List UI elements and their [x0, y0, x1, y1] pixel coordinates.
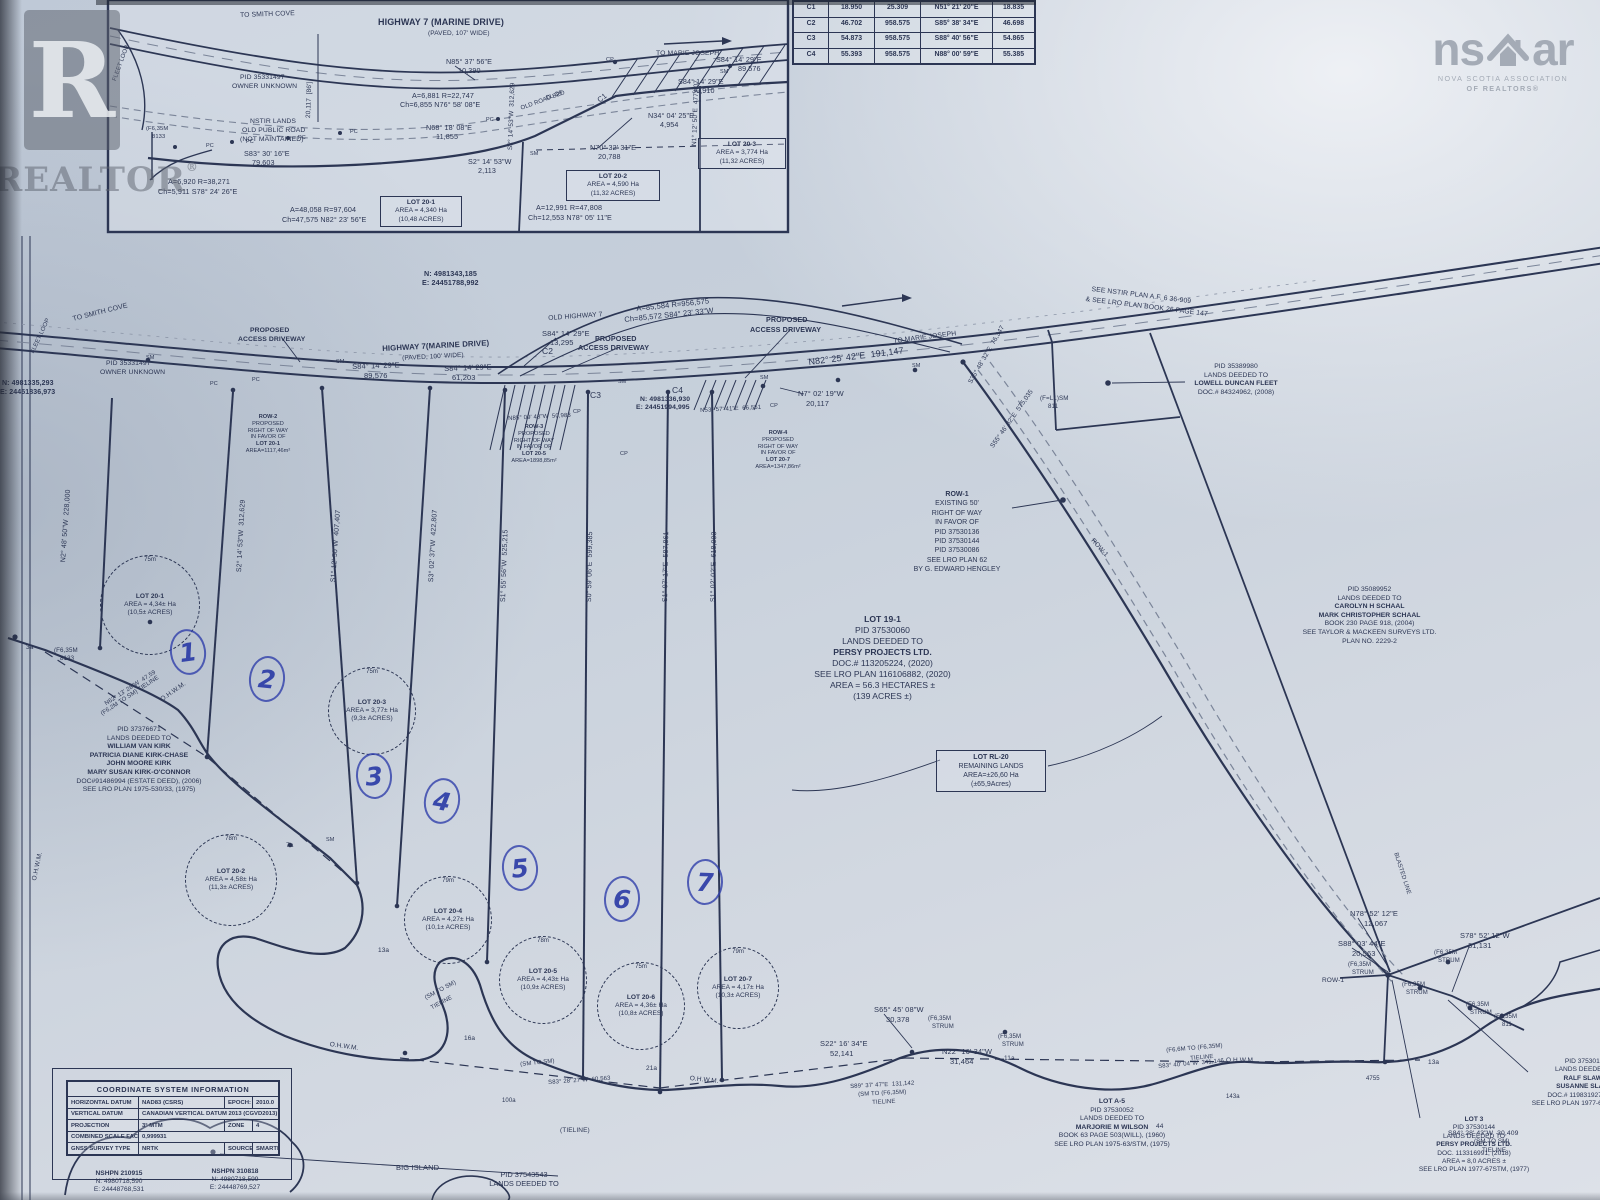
- blasted-line: [1150, 333, 1390, 972]
- coord-table-cell: ZONE: [224, 1120, 252, 1131]
- map-label: S65° 45' 08"W: [874, 1006, 924, 1014]
- map-label: OWNER UNKNOWN: [100, 369, 165, 376]
- lot-circle: 79mLOT 20-7AREA = 4,17± Ha(10,3± ACRES): [697, 947, 779, 1029]
- map-label: (F6,35M: [1494, 1014, 1517, 1020]
- map-label: O.H.W.M.: [689, 1076, 719, 1086]
- map-label: 3a: [26, 645, 33, 652]
- map-label: C2: [542, 347, 553, 356]
- map-label: S3° 02' 37"W 422,807: [428, 510, 439, 583]
- text-block-line: (139 ACRES ±): [780, 691, 985, 702]
- text-block: LOT 3PID 37530144LANDS DEEDED TOPERSY PR…: [1385, 1116, 1563, 1175]
- curve-table-cell: 18.835: [992, 2, 1034, 17]
- map-label: PC: [210, 382, 218, 388]
- text-block-line: PID 37543543: [468, 1170, 580, 1179]
- map-label: STRUM: [1352, 970, 1374, 976]
- text-block-line: SEE TAYLOR & MACKEEN SURVEYS LTD.: [1282, 629, 1457, 638]
- lot-circle-label: LOT 20-3AREA = 3,77± Ha(9,3± ACRES): [346, 699, 398, 724]
- text-block-line: PID 37530060: [780, 625, 985, 636]
- text-block-line: IN FAVOR OF: [232, 434, 304, 441]
- nsar-subtitle-1: NOVA SCOTIA ASSOCIATION: [1418, 74, 1588, 83]
- realtor-logo-icon: R: [24, 10, 120, 150]
- map-label: 30,378: [886, 1016, 910, 1024]
- text-block: PID 37543543LANDS DEEDED TO: [468, 1170, 580, 1189]
- text-block: LOT 20-1AREA = 4,340 Ha(10,48 ACRES): [380, 196, 462, 227]
- map-label: CP: [620, 452, 628, 458]
- map-label: PC: [298, 136, 306, 142]
- nsar-logo: ns ar NOVA SCOTIA ASSOCIATION OF REALTOR…: [1418, 28, 1588, 93]
- map-label: CP: [573, 410, 581, 416]
- map-label: N7° 02' 19"W: [798, 390, 844, 398]
- east-boundary: [963, 362, 1388, 975]
- text-block: LOT A-5PID 37530052LANDS DEEDED TOMARJOR…: [1028, 1098, 1196, 1150]
- map-label: 89,576: [364, 372, 388, 380]
- lot-circle-radius-label: 75m: [635, 964, 647, 970]
- text-block-line: (±65,9Acres): [940, 780, 1042, 789]
- text-block: PID 35389980LANDS DEEDED TOLOWELL DUNCAN…: [1160, 363, 1312, 397]
- map-label: A=6,881 R=22,747: [412, 92, 474, 100]
- map-label: ACCESS DRIVEWAY: [750, 326, 821, 334]
- map-label: PC: [246, 140, 254, 146]
- coord-table-cell: CANADIAN VERTICAL DATUM 2013 (CGVD2013): [138, 1109, 278, 1120]
- coord-table-row: COMBINED SCALE FACTOR AT THE SURVEY SITE…: [68, 1131, 278, 1143]
- lot-circle: 79mLOT 20-4AREA = 4,27± Ha(10,1± ACRES): [404, 876, 492, 964]
- text-block-line: PATRICIA DIANE KIRK-CHASE: [40, 752, 238, 761]
- text-block-line: PROPOSED: [232, 421, 304, 428]
- map-label: (F6,35M: [1466, 1002, 1489, 1008]
- text-block-line: DOC.# 113205224, (2020): [780, 658, 985, 669]
- map-label: (PAVED, 100' WIDE): [402, 353, 464, 363]
- map-label: FLEET LOOP: [112, 44, 131, 82]
- map-label: S2° 14' 53"W 312,629: [236, 500, 247, 573]
- curve-table-cell: N88° 00' 59"E: [920, 49, 992, 64]
- text-block-line: DOC.# 84324962, (2008): [1160, 389, 1312, 398]
- curve-table-cell: 958.575: [874, 33, 920, 48]
- text-block-line: PID 37530086: [898, 546, 1016, 555]
- map-label: SM: [530, 152, 538, 158]
- coord-table-cell: HORIZONTAL DATUM: [68, 1097, 138, 1108]
- coord-table-row: HORIZONTAL DATUMNAD83 (CSRS)EPOCH:2010.0: [68, 1096, 278, 1108]
- text-block-line: LOT RL-20: [940, 753, 1042, 762]
- text-block-line: LANDS DEEDED TO: [1282, 595, 1457, 604]
- text-block-line: SEE LRO PLAN 1977-67STM, (1977): [1385, 1166, 1563, 1174]
- map-label: (F=L1)SM: [1040, 396, 1068, 403]
- map-label: 10,390: [458, 67, 481, 75]
- map-label: (F6,35M: [1348, 962, 1371, 968]
- map-label: 20,563: [1352, 950, 1376, 958]
- coord-table-cell: GNSS SURVEY TYPE: [68, 1143, 138, 1154]
- photo-edge-bottom: [0, 1192, 1600, 1200]
- map-label: HIGHWAY 7 (MARINE DRIVE): [378, 18, 504, 27]
- lot-circle-radius-label: 75m: [144, 557, 156, 563]
- lot-circle-label: LOT 20-5AREA = 4,43± Ha(10,9± ACRES): [517, 968, 569, 993]
- lot-circle-radius-label: 79m: [442, 878, 454, 884]
- map-label: A=12,991 R=47,808: [536, 204, 602, 212]
- row-road: [978, 362, 1404, 984]
- map-label: STRUM: [932, 1024, 954, 1030]
- text-block-line: PROPOSED: [498, 431, 570, 438]
- text-block-line: REMAINING LANDS: [940, 762, 1042, 771]
- map-label: SM: [336, 360, 344, 366]
- text-block-line: PROPOSED: [742, 437, 814, 444]
- map-label: S83° 40' 04"W 341,146: [1158, 1058, 1224, 1070]
- text-block-line: LOT 20-3: [702, 141, 782, 149]
- map-label: (TIELINE): [560, 1128, 590, 1135]
- realtor-logo-letter: R: [29, 19, 115, 142]
- text-block-line: PID 35089952: [1282, 586, 1457, 595]
- map-label: 13,295: [550, 339, 574, 347]
- map-label: N78° 52' 12"E: [1350, 910, 1398, 918]
- map-label: 21a: [646, 1066, 657, 1073]
- handwritten-lot-number: 6: [602, 875, 641, 923]
- text-block-line: LOT 20-2: [570, 173, 656, 181]
- handwritten-lot-number: 7: [686, 858, 724, 905]
- curve-table-cell: 54.865: [992, 33, 1034, 48]
- handwritten-lot-number: 2: [247, 654, 288, 704]
- map-label: 20,788: [598, 153, 621, 161]
- map-label: (F6,2M TO SM) TIELINE: [100, 675, 160, 717]
- text-block-line: IN FAVOR OF: [498, 444, 570, 451]
- map-label: N53° 57' 41"E 66,551: [700, 405, 761, 414]
- map-label: STRUM: [1406, 990, 1428, 996]
- map-label: PID 35331497: [106, 360, 151, 367]
- coord-table-cell: EPOCH:: [224, 1097, 252, 1108]
- map-label: O.H.W.M.: [329, 1042, 359, 1053]
- nsar-subtitle-2: OF REALTORS®: [1418, 84, 1588, 93]
- text-block-line: AREA = 4,340 Ha: [384, 207, 458, 215]
- map-label: N70° 32' 31"E: [590, 144, 636, 152]
- text-block-line: E: 24448769,527: [186, 1184, 284, 1192]
- right-cove-outline: [1520, 950, 1600, 1008]
- map-label: C3: [590, 391, 601, 400]
- text-block: PID 35089952LANDS DEEDED TOCAROLYN H SCH…: [1282, 586, 1457, 646]
- text-block: ROW-1EXISTING 50'RIGHT OF WAYIN FAVOR OF…: [898, 490, 1016, 575]
- text-block-line: PID 37530136: [898, 528, 1016, 537]
- text-block-line: AREA=1347,86m²: [742, 464, 814, 471]
- lot-circle-radius-label: 79m: [732, 949, 744, 955]
- text-block-line: (11,32 ACRES): [702, 158, 782, 166]
- text-block: LOT 20-3AREA = 3,774 Ha(11,32 ACRES): [698, 138, 786, 169]
- map-label: N85° 09' 48"W 50,983: [508, 413, 571, 423]
- map-label: 143a: [1226, 1094, 1240, 1100]
- map-label: 100a: [502, 1098, 516, 1104]
- map-label: BLASTED LINE: [1392, 852, 1411, 895]
- map-label: STRUM: [1438, 958, 1460, 964]
- curve-table-row: C118.95025.309N51° 21' 20"E18.835: [794, 2, 1034, 17]
- map-label: N: 4981343,185: [424, 270, 477, 278]
- map-label: PROPOSED: [250, 327, 289, 334]
- text-block-line: SEE LRO PLAN 1977-6/STM, (1977): [1506, 1100, 1600, 1108]
- map-label: A=48,058 R=97,604: [290, 206, 356, 214]
- map-label: 8133: [152, 134, 165, 140]
- map-label: E: 24451994,995: [636, 404, 690, 411]
- coord-table-row: PROJECTION3° MTMZONE4: [68, 1119, 278, 1131]
- map-label: STRUM: [1470, 1010, 1492, 1016]
- text-block-line: AREA = 3,774 Ha: [702, 149, 782, 157]
- lot-circle-label: LOT 20-6AREA = 4,36± Ha(10,8± ACRES): [615, 994, 667, 1019]
- map-label: O.H.W.M.: [32, 852, 45, 882]
- text-block: PID 37376671LANDS DEEDED TOWILLIAM VAN K…: [40, 726, 238, 795]
- text-block-line: CAROLYN H SCHAAL: [1282, 603, 1457, 612]
- arrowhead: [902, 294, 912, 302]
- map-label: S84° 14' 29"E: [352, 361, 400, 371]
- text-block-line: DOC.# 119831927, (2018): [1506, 1092, 1600, 1100]
- text-block-line: JOHN MOORE KIRK: [40, 760, 238, 769]
- map-label: TO MARIE JOSEPH: [656, 50, 719, 57]
- handwritten-lot-number: 3: [354, 752, 393, 800]
- coord-table-cell: PROJECTION: [68, 1120, 138, 1131]
- map-label: CP: [606, 58, 614, 64]
- text-block: LOT RL-20REMAINING LANDSAREA=±26,60 Ha(±…: [936, 750, 1046, 792]
- text-block-line: LOT 19-1: [780, 614, 985, 625]
- text-block-line: BOOK 230 PAGE 918, (2004): [1282, 620, 1457, 629]
- map-label: OWNER UNKNOWN: [232, 83, 297, 90]
- map-label: N: 4981335,293: [2, 380, 54, 387]
- inset-arrow: [664, 41, 722, 44]
- map-label: N68° 18' 08"E: [426, 124, 472, 132]
- map-label: 11,855: [436, 133, 458, 141]
- text-block-line: MARY SUSAN KIRK-O'CONNOR: [40, 769, 238, 778]
- text-block-line: LOT 20-5: [498, 451, 570, 458]
- text-block-line: SEE LRO PLAN 116106882, (2020): [780, 669, 985, 680]
- coordinate-system-table: COORDINATE SYSTEM INFORMATIONHORIZONTAL …: [66, 1080, 280, 1156]
- text-block-line: PID 37530052: [1028, 1107, 1196, 1116]
- map-label: S2° 14' 53"W: [468, 158, 512, 166]
- text-block-line: LANDS DEEDED TO: [1506, 1066, 1600, 1074]
- text-block-line: LANDS DEEDED TO: [1385, 1133, 1563, 1141]
- map-label: 20,117 [86']: [306, 82, 314, 119]
- map-label: S88° 03' 44"E: [1338, 940, 1386, 948]
- text-block-line: EXISTING 50': [898, 499, 1016, 508]
- map-label: S1° 07' 17"E 587,861: [662, 531, 671, 602]
- survey-plan-photo: TO SMITH COVEHIGHWAY 7 (MARINE DRIVE)(PA…: [0, 0, 1600, 1200]
- curve-table-cell: 18.950: [828, 2, 874, 17]
- text-block-line: PERSY PROJECTS LTD.: [1385, 1141, 1563, 1149]
- curve-table-cell: 55.393: [828, 49, 874, 64]
- map-label: (F6,35M: [1402, 982, 1425, 988]
- text-block-line: LOWELL DUNCAN FLEET: [1160, 380, 1312, 389]
- map-label: N22° 16' 34"W: [942, 1048, 992, 1056]
- coord-table-row: VERTICAL DATUMCANADIAN VERTICAL DATUM 20…: [68, 1108, 278, 1120]
- curve-table-cell: C2: [794, 18, 828, 33]
- lot-circle-label: LOT 20-2AREA = 4,58± Ha(11,3± ACRES): [205, 868, 257, 893]
- coord-table-cell: NRTK: [138, 1143, 224, 1154]
- map-label: S84° 14' 29"E: [444, 363, 492, 373]
- lot-circle: 75mLOT 20-6AREA = 4,36± Ha(10,8± ACRES): [597, 962, 685, 1050]
- text-block-line: PERSY PROJECTS LTD.: [780, 647, 985, 658]
- text-block-line: SUSANNE SLAWIK: [1506, 1083, 1600, 1091]
- handwritten-lot-number: 5: [500, 843, 541, 893]
- text-block-line: SEE LRO PLAN 1975-530/33, (1975): [40, 786, 238, 795]
- map-label: S35° 48' 32"E 76,347: [968, 325, 1007, 385]
- text-block-line: PID 37376671: [40, 726, 238, 735]
- text-block-line: AREA=1117,46m²: [232, 448, 304, 455]
- map-label: PC: [350, 130, 358, 136]
- map-label: S84° 14' 29"E: [542, 330, 590, 338]
- text-block-line: LANDS DEEDED TO: [468, 1179, 580, 1188]
- text-block-line: LOT 20-1: [384, 199, 458, 207]
- map-label: (F6,35M: [146, 126, 168, 132]
- text-block: PID 37530136LANDS DEEDED TORALF SLAWIKSU…: [1506, 1058, 1600, 1108]
- text-block-line: BY G. EDWARD HENGLEY: [898, 565, 1016, 574]
- text-block-line: MARJORIE M WILSON: [1028, 1124, 1196, 1133]
- text-block-line: AREA=±26,60 Ha: [940, 771, 1042, 780]
- text-block-line: PID 35389980: [1160, 363, 1312, 372]
- text-block: ROW-3PROPOSEDRIGHT OF WAYIN FAVOR OFLOT …: [498, 424, 570, 465]
- map-label: (PAVED, 107' WIDE): [428, 31, 490, 38]
- text-block-line: BOOK 63 PAGE 503(WILL), (1960): [1028, 1132, 1196, 1141]
- lot-circle: 78mLOT 20-5AREA = 4,43± Ha(10,9± ACRES): [499, 936, 587, 1024]
- inset-arrowhead: [722, 37, 732, 45]
- text-block-line: LOT 20-7: [742, 457, 814, 464]
- text-block-line: PLAN NO. 2229-2: [1282, 638, 1457, 647]
- text-block-line: WILLIAM VAN KIRK: [40, 743, 238, 752]
- text-block-line: PID 37530144: [1385, 1124, 1563, 1132]
- map-label: A=6,920 R=38,271: [168, 178, 230, 186]
- map-label: STRUM: [1002, 1042, 1024, 1048]
- text-block-line: MARK CHRISTOPHER SCHAAL: [1282, 612, 1457, 621]
- text-block-line: AREA = 56.3 HECTARES ±: [780, 680, 985, 691]
- text-block-line: ROW-2: [232, 414, 304, 421]
- map-label: 89,576: [738, 65, 761, 73]
- curve-table-row: C354.873958.575S88° 40' 56"E54.865: [794, 32, 1034, 48]
- text-block-line: RIGHT OF WAY: [742, 444, 814, 451]
- text-block-line: IN FAVOR OF: [898, 518, 1016, 527]
- map-label: S84° 14' 29"E: [716, 56, 762, 64]
- curve-table-row: C455.393958.575N88° 00' 59"E55.385: [794, 48, 1034, 64]
- map-label: E: 24451788,992: [422, 279, 479, 287]
- map-label: O.H.W.M.: [160, 681, 188, 703]
- map-label: 811: [1048, 404, 1058, 411]
- curve-table-cell: 958.575: [874, 49, 920, 64]
- text-block-line: RIGHT OF WAY: [498, 438, 570, 445]
- coordinate-table-frame: COORDINATE SYSTEM INFORMATIONHORIZONTAL …: [52, 1068, 292, 1180]
- curve-table-cell: C1: [794, 2, 828, 17]
- map-label: S1° 12' 50"W 407,407: [330, 510, 342, 583]
- map-label: 61,203: [452, 374, 476, 382]
- map-label: 2,113: [478, 167, 496, 175]
- map-label: PC: [252, 378, 260, 384]
- text-block-line: ROW-3: [498, 424, 570, 431]
- text-block-line: LOT 20-1: [232, 441, 304, 448]
- map-label: OLD HIGHWAY 7: [548, 311, 603, 322]
- map-label: N1° 12' 50"E 477,407: [692, 80, 701, 146]
- map-label: C1: [596, 92, 609, 104]
- map-label: NSTIR LANDS: [250, 118, 296, 125]
- map-label: 31,131: [1468, 942, 1492, 950]
- map-label: 11a: [1004, 1056, 1015, 1063]
- text-block-line: LANDS DEEDED TO: [780, 636, 985, 647]
- map-label: ACCESS DRIVEWAY: [238, 336, 305, 343]
- text-block-line: SEE LRO PLAN 1975-63/STM, (1975): [1028, 1141, 1196, 1150]
- curve-table-cell: 46.698: [992, 18, 1034, 33]
- curve-table-cell: 958.575: [874, 18, 920, 33]
- handwritten-lot-number: 4: [420, 775, 463, 827]
- curve-table-row: C246.702958.575S85° 38' 34"E46.698: [794, 17, 1034, 33]
- text-block-line: AREA = 8,0 ACRES ±: [1385, 1158, 1563, 1166]
- map-label: OLD PUBLIC ROAD: [242, 127, 305, 134]
- map-label: N2° 48' 50"W 228,000: [60, 489, 72, 562]
- lot-circle-radius-label: 78m: [225, 836, 237, 842]
- lot-circle-label: LOT 20-4AREA = 4,27± Ha(10,1± ACRES): [422, 908, 474, 933]
- text-block-line: AREA=1898,85m²: [498, 458, 570, 465]
- coord-table-title: COORDINATE SYSTEM INFORMATION: [68, 1082, 278, 1096]
- text-block-line: AREA = 4,590 Ha: [570, 181, 656, 189]
- map-label: Ch=12,553 N78° 05' 11"E: [528, 214, 612, 222]
- text-block-line: DOC. 113316991, (2018): [1385, 1150, 1563, 1158]
- coord-table-cell: 2010.0: [252, 1097, 278, 1108]
- map-label: ACCESS DRIVEWAY: [578, 344, 649, 352]
- text-block: LOT 20-2AREA = 4,590 Ha(11,32 ACRES): [566, 170, 660, 201]
- map-label: C4: [672, 386, 683, 395]
- coord-table-row: GNSS SURVEY TYPENRTKSOURCESMARTNET: [68, 1142, 278, 1154]
- map-label: N: 4981336,930: [640, 396, 690, 403]
- map-label: Ch=6,855 N76° 58' 08"E: [400, 101, 480, 109]
- text-block: ROW-2PROPOSEDRIGHT OF WAYIN FAVOR OFLOT …: [232, 414, 304, 455]
- coord-table-cell: NAD83 (CSRS): [138, 1097, 224, 1108]
- map-label: PID 35331497: [240, 74, 285, 81]
- text-block-line: IN FAVOR OF: [742, 450, 814, 457]
- map-label: S1° 55' 56"W 525,215: [500, 529, 510, 602]
- coord-table-cell: COMBINED SCALE FACTOR AT THE SURVEY SITE…: [68, 1132, 138, 1143]
- curve-table-cell: N51° 21' 20"E: [920, 2, 992, 17]
- coord-table-cell: 4: [252, 1120, 278, 1131]
- map-label: 20,117: [806, 400, 829, 408]
- curve-table-cell: 54.873: [828, 33, 874, 48]
- text-block-line: LANDS DEEDED TO: [1160, 372, 1312, 381]
- text-block-line: PID 37530136: [1506, 1058, 1600, 1066]
- curve-table-cell: 46.702: [828, 18, 874, 33]
- map-label: N82° 25' 42"E 191,147: [808, 346, 904, 367]
- map-label: SM: [912, 364, 920, 370]
- map-label: 4,954: [660, 121, 679, 129]
- map-label: 16a: [464, 1036, 475, 1043]
- map-label: 12,067: [1364, 920, 1388, 928]
- map-label: Ch=47,575 N82° 23' 56"E: [282, 216, 366, 224]
- map-label: 811: [1502, 1022, 1512, 1028]
- lot-circle: 78mLOT 20-2AREA = 4,58± Ha(11,3± ACRES): [185, 834, 277, 926]
- coord-table-cell: SMARTNET: [252, 1143, 278, 1154]
- map-label: (SM TO (F6,35M): [858, 1089, 907, 1098]
- map-label: SM: [720, 70, 728, 76]
- map-label: S83° 30' 16"E: [244, 150, 290, 158]
- curve-data-table: C118.95025.309N51° 21' 20"E18.835C246.70…: [792, 0, 1036, 65]
- map-label: O.H.W.M.: [1226, 1058, 1255, 1065]
- coord-table-cell: VERTICAL DATUM: [68, 1109, 138, 1120]
- text-block-line: LOT A-5: [1028, 1098, 1196, 1107]
- map-label: TO SMITH COVE: [72, 302, 129, 323]
- map-label: 52,141: [830, 1050, 854, 1058]
- map-label: (F6,35M: [54, 648, 78, 655]
- coord-table-cell: 0,999931: [138, 1132, 278, 1143]
- text-block-line: PID 37530144: [898, 537, 1016, 546]
- nsar-logo-ar: ar: [1532, 31, 1573, 68]
- map-label: PROPOSED: [766, 316, 808, 324]
- map-label: SM: [326, 838, 334, 844]
- text-block-line: (11,32 ACRES): [570, 190, 656, 198]
- text-block-line: RALF SLAWIK: [1506, 1075, 1600, 1083]
- map-label: (F6,35M: [998, 1034, 1021, 1040]
- map-label: PROPOSED: [595, 335, 637, 343]
- coord-table-cell: SOURCE: [224, 1143, 252, 1154]
- map-label: SM: [146, 356, 154, 362]
- text-block-line: ROW-4: [742, 430, 814, 437]
- map-label: E: 24451836,973: [0, 389, 55, 396]
- map-label: PC: [206, 144, 214, 150]
- map-label: (F6,6M TO (F6,35M): [1166, 1043, 1223, 1054]
- map-label: CP: [770, 404, 778, 410]
- map-label: 13a: [378, 948, 389, 955]
- map-label: OLD ROAD BED: [520, 90, 566, 112]
